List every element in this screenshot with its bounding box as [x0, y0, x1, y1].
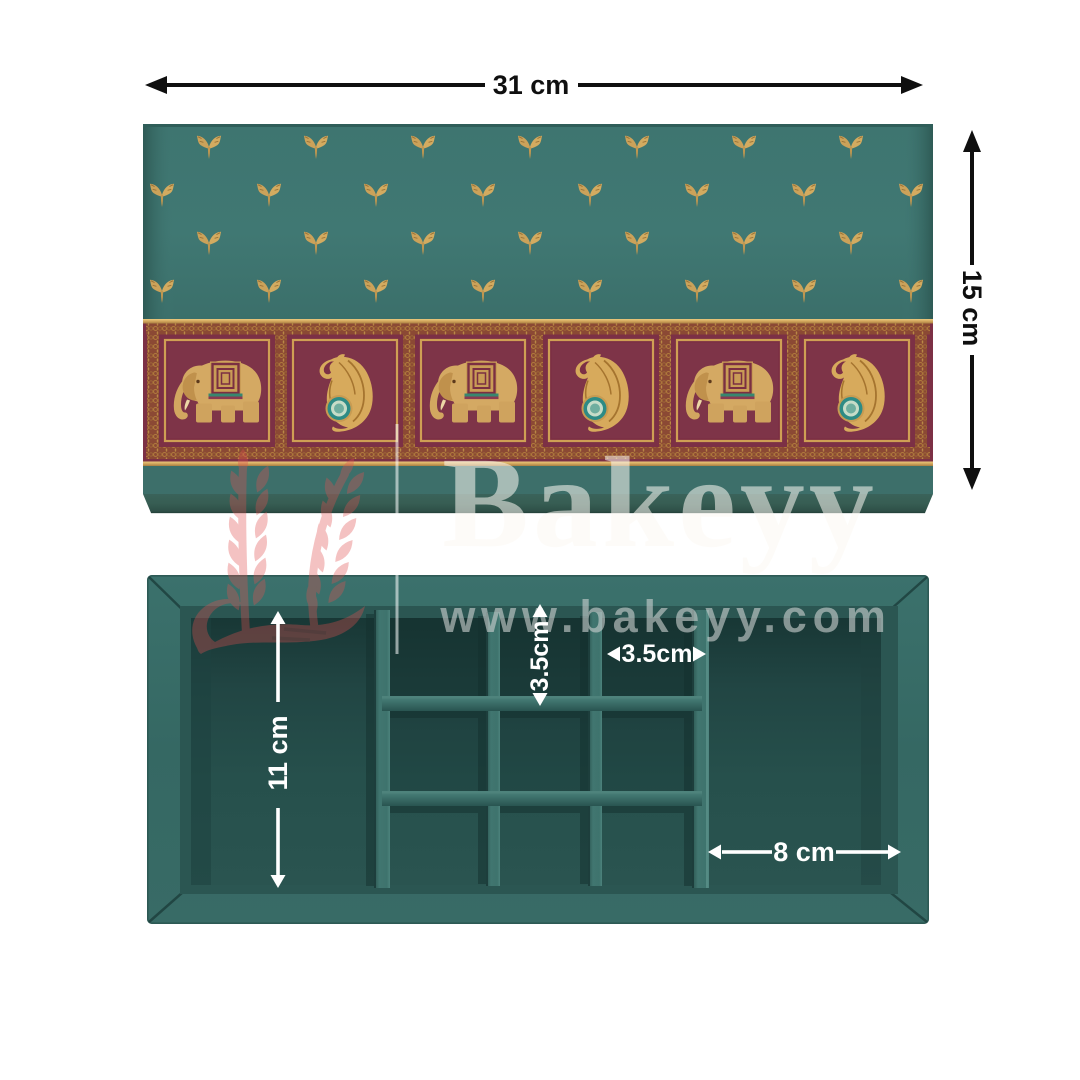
svg-text:3.5cm: 3.5cm [622, 640, 693, 668]
svg-text:www.bakeyy.com: www.bakeyy.com [439, 591, 891, 642]
svg-text:Bakeyy: Bakeyy [442, 431, 878, 575]
svg-text:15 cm: 15 cm [957, 270, 987, 347]
svg-text:3.5cm: 3.5cm [526, 621, 554, 692]
svg-text:8 cm: 8 cm [773, 837, 835, 867]
svg-text:31 cm: 31 cm [493, 70, 570, 100]
svg-text:11 cm: 11 cm [263, 715, 293, 790]
